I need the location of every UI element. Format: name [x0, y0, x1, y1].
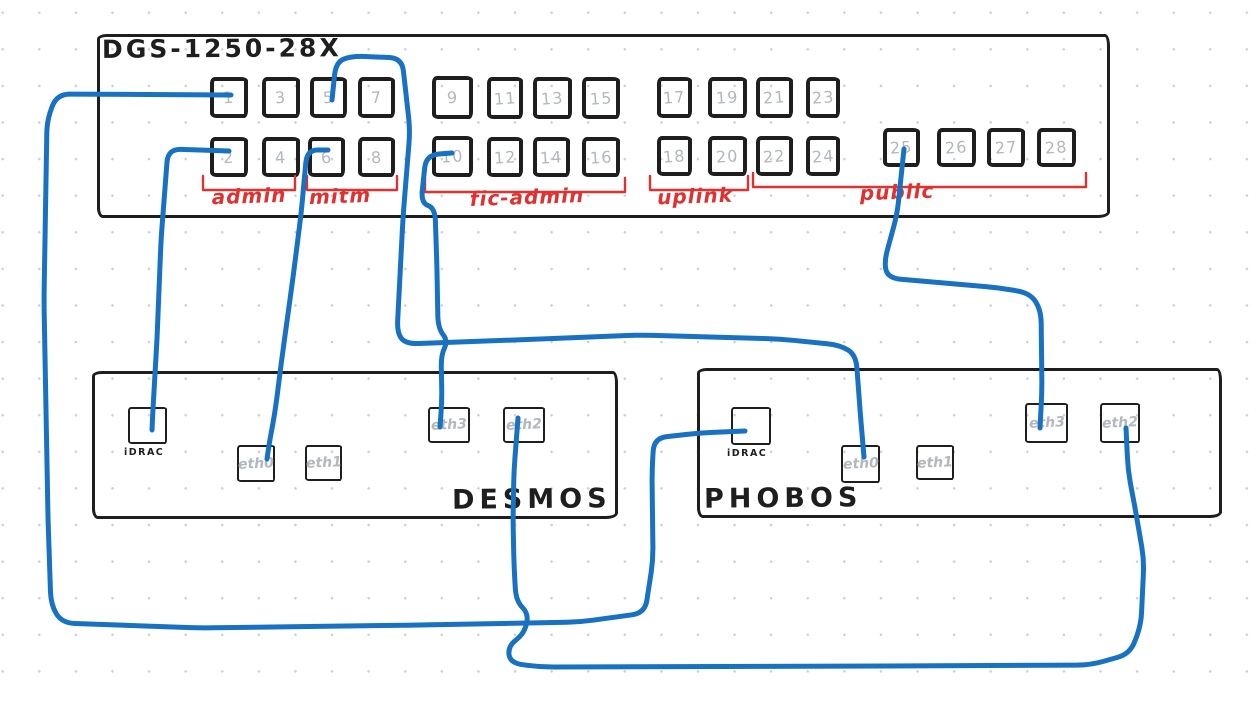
server-name-desmos: DESMOS — [452, 483, 612, 515]
phobos-port-eth0: eth0 — [841, 445, 880, 483]
switch-port-23-number: 23 — [811, 87, 835, 108]
phobos-port-eth0-label: eth0 — [842, 455, 879, 473]
switch-port-28-number: 28 — [1045, 137, 1069, 158]
switch-port-24-number: 24 — [811, 146, 835, 167]
switch-port-14: 14 — [533, 137, 570, 177]
phobos-port-eth1-label: eth1 — [917, 454, 954, 472]
switch-port-1: 1 — [210, 77, 248, 118]
phobos-port-eth3-label: eth3 — [1028, 414, 1065, 432]
switch-port-22: 22 — [756, 136, 793, 176]
switch-port-11-number: 11 — [493, 88, 517, 109]
switch-port-8: 8 — [358, 137, 395, 177]
server-name-phobos: PHOBOS — [704, 482, 863, 514]
switch-port-27-number: 27 — [994, 137, 1018, 158]
phobos-port-eth1: eth1 — [916, 445, 954, 480]
switch-port-22-number: 22 — [763, 146, 787, 167]
switch-port-15: 15 — [582, 77, 620, 119]
switch-port-21: 21 — [756, 77, 793, 118]
switch-port-2-number: 2 — [223, 147, 235, 167]
switch-port-9-number: 9 — [446, 88, 458, 108]
desmos-port-eth3-label: eth3 — [431, 416, 468, 434]
switch-port-13-number: 13 — [541, 88, 565, 109]
phobos-port-idrac — [731, 407, 771, 445]
switch-port-15-number: 15 — [589, 88, 613, 109]
switch-port-21-number: 21 — [763, 87, 787, 108]
switch-port-7-number: 7 — [370, 88, 382, 108]
switch-port-20-number: 20 — [716, 146, 740, 167]
phobos-port-idrac-label: iDRAC — [727, 448, 767, 459]
switch-port-1-number: 1 — [223, 88, 235, 108]
phobos-port-eth3: eth3 — [1025, 403, 1068, 443]
phobos-port-eth2-label: eth2 — [1102, 414, 1139, 432]
switch-port-2: 2 — [210, 137, 248, 177]
switch-port-10-number: 10 — [441, 146, 465, 167]
desmos-port-idrac-label: iDRAC — [124, 447, 164, 458]
switch-port-13: 13 — [533, 77, 572, 119]
switch-port-24: 24 — [806, 136, 840, 176]
switch-port-28: 28 — [1037, 128, 1076, 167]
switch-port-18-number: 18 — [663, 146, 687, 167]
switch-port-19: 19 — [708, 77, 747, 118]
desmos-port-eth0: eth0 — [237, 445, 275, 482]
switch-port-14-number: 14 — [540, 147, 564, 168]
desmos-port-idrac — [128, 407, 167, 444]
group-label-mitm: mitm — [309, 183, 372, 209]
switch-port-17-number: 17 — [663, 87, 687, 108]
switch-port-11: 11 — [487, 77, 523, 119]
switch-port-7: 7 — [358, 77, 395, 118]
switch-port-27: 27 — [987, 128, 1025, 167]
phobos-port-eth2: eth2 — [1100, 403, 1140, 443]
diagram-canvas: DGS-1250-28X1357911131517192123246810121… — [0, 0, 1256, 703]
group-label-public: public — [859, 179, 934, 206]
switch-port-19-number: 19 — [716, 87, 740, 108]
shapes-layer: DGS-1250-28X1357911131517192123246810121… — [0, 0, 1256, 703]
switch-port-25: 25 — [883, 128, 920, 167]
switch-port-6-number: 6 — [320, 147, 332, 167]
desmos-port-eth2-label: eth2 — [506, 416, 543, 434]
switch-port-16: 16 — [582, 137, 620, 177]
group-label-uplink: uplink — [657, 183, 734, 210]
desmos-port-eth3: eth3 — [428, 407, 470, 443]
desmos-port-eth1-label: eth1 — [305, 454, 342, 472]
switch-port-9: 9 — [432, 76, 473, 119]
switch-port-26-number: 26 — [945, 137, 969, 158]
switch-port-17: 17 — [657, 77, 692, 118]
switch-port-26: 26 — [937, 128, 976, 167]
switch-port-10: 10 — [432, 136, 473, 177]
group-label-admin: admin — [211, 183, 287, 210]
switch-port-23: 23 — [806, 77, 840, 118]
switch-port-12: 12 — [487, 137, 523, 177]
switch-port-8-number: 8 — [370, 147, 382, 167]
switch-title: DGS-1250-28X — [102, 33, 342, 64]
switch-port-3: 3 — [262, 77, 300, 118]
desmos-port-eth1: eth1 — [305, 445, 342, 481]
switch-port-25-number: 25 — [890, 137, 914, 158]
group-label-fic-admin: fic-admin — [469, 183, 584, 211]
desmos-port-eth2: eth2 — [503, 407, 545, 443]
switch-port-5-number: 5 — [322, 88, 334, 108]
switch-port-20: 20 — [708, 136, 747, 176]
switch-port-6: 6 — [308, 137, 345, 177]
switch-port-5: 5 — [310, 77, 347, 118]
switch-port-4-number: 4 — [275, 147, 287, 167]
switch-port-18: 18 — [657, 136, 692, 176]
desmos-port-eth0-label: eth0 — [238, 455, 275, 473]
switch-port-16-number: 16 — [589, 147, 613, 168]
switch-port-3-number: 3 — [275, 88, 287, 108]
switch-port-4: 4 — [262, 137, 300, 177]
switch-port-12-number: 12 — [493, 147, 517, 168]
